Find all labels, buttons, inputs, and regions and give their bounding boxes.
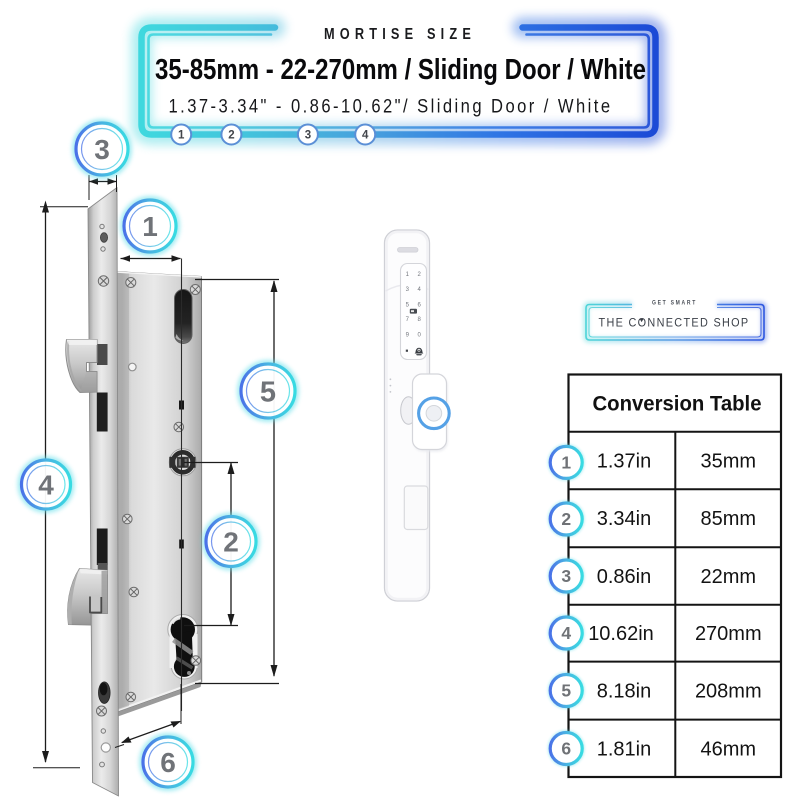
svg-text:5: 5 [561, 681, 571, 701]
svg-text:6: 6 [561, 739, 571, 759]
svg-text:85mm: 85mm [701, 508, 757, 530]
svg-text:35mm: 35mm [701, 451, 757, 473]
svg-text:8.18in: 8.18in [597, 681, 652, 703]
svg-text:46mm: 46mm [701, 739, 757, 761]
svg-text:THE CONNECTED SHOP: THE CONNECTED SHOP [599, 318, 750, 330]
svg-text:GET SMART: GET SMART [652, 300, 697, 307]
svg-text:1.37-3.34" - 0.86-10.62"/ Slid: 1.37-3.34" - 0.86-10.62"/ Sliding Door /… [169, 97, 613, 118]
svg-text:1: 1 [178, 130, 185, 142]
svg-text:22mm: 22mm [701, 566, 757, 588]
svg-text:270mm: 270mm [695, 623, 762, 645]
svg-text:0.86in: 0.86in [597, 566, 652, 588]
svg-text:2: 2 [561, 509, 571, 529]
svg-text:4: 4 [362, 130, 369, 142]
svg-text:1.37in: 1.37in [597, 451, 652, 473]
svg-text:2: 2 [223, 527, 239, 558]
svg-text:35-85mm - 22-270mm / Sliding D: 35-85mm - 22-270mm / Sliding Door / Whit… [155, 54, 646, 86]
svg-text:Conversion Table: Conversion Table [593, 392, 762, 416]
svg-text:1: 1 [142, 211, 158, 242]
svg-text:3: 3 [94, 134, 110, 165]
svg-text:2: 2 [228, 130, 234, 142]
svg-text:4: 4 [561, 623, 571, 643]
svg-text:3: 3 [561, 566, 571, 586]
svg-text:5: 5 [260, 377, 276, 409]
svg-text:3.34in: 3.34in [597, 508, 652, 530]
svg-text:4: 4 [38, 470, 54, 501]
svg-text:MORTISE SIZE: MORTISE SIZE [324, 26, 476, 43]
svg-text:10.62in: 10.62in [588, 623, 654, 645]
svg-text:1: 1 [561, 453, 571, 473]
svg-text:1.81in: 1.81in [597, 739, 652, 761]
svg-text:208mm: 208mm [695, 681, 762, 703]
svg-text:3: 3 [305, 130, 311, 142]
svg-text:6: 6 [160, 747, 176, 778]
